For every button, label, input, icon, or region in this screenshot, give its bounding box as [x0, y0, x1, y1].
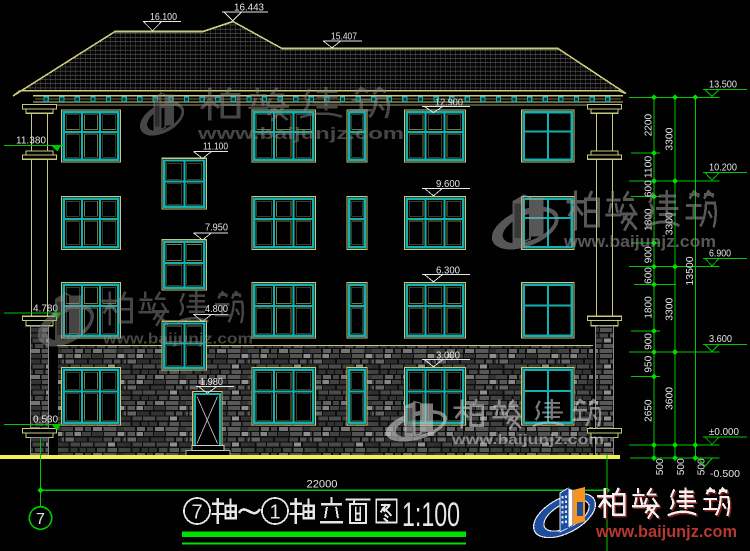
svg-text:950: 950: [644, 355, 655, 372]
svg-text:900: 900: [644, 333, 655, 350]
svg-text:1: 1: [269, 502, 280, 524]
svg-text:3300: 3300: [665, 297, 676, 320]
svg-text:500: 500: [655, 458, 666, 475]
svg-text:0.530: 0.530: [33, 413, 58, 425]
svg-text:500: 500: [676, 458, 687, 475]
svg-text:www.baijunjz.com: www.baijunjz.com: [197, 125, 404, 143]
svg-text:7: 7: [36, 511, 45, 528]
svg-text:2650: 2650: [644, 399, 655, 422]
svg-text:www.baijunjz.com: www.baijunjz.com: [595, 522, 737, 541]
svg-text:1:100: 1:100: [402, 496, 460, 534]
svg-text:3600: 3600: [665, 387, 676, 410]
svg-text:3300: 3300: [665, 127, 676, 150]
svg-text:10.200: 10.200: [709, 161, 737, 173]
svg-text:600: 600: [644, 267, 655, 284]
svg-text:www.baijunjz.com: www.baijunjz.com: [563, 232, 716, 251]
svg-text:±0.000: ±0.000: [709, 426, 739, 438]
svg-text:1800: 1800: [644, 296, 655, 319]
svg-text:13500: 13500: [685, 256, 696, 285]
svg-text:www.baijunjz.com: www.baijunjz.com: [102, 331, 253, 348]
svg-text:11.380: 11.380: [16, 135, 46, 147]
svg-text:7: 7: [191, 502, 202, 524]
svg-text:-0.500: -0.500: [710, 468, 740, 480]
svg-text:2200: 2200: [644, 113, 655, 136]
svg-text:500: 500: [696, 458, 707, 475]
svg-text:7.950: 7.950: [205, 222, 228, 234]
svg-text:13.500: 13.500: [709, 78, 737, 90]
svg-text:1100: 1100: [644, 155, 655, 178]
svg-text:22000: 22000: [307, 479, 338, 491]
svg-text:www.baijunjz.com: www.baijunjz.com: [451, 432, 604, 447]
svg-text:3.600: 3.600: [709, 333, 732, 345]
